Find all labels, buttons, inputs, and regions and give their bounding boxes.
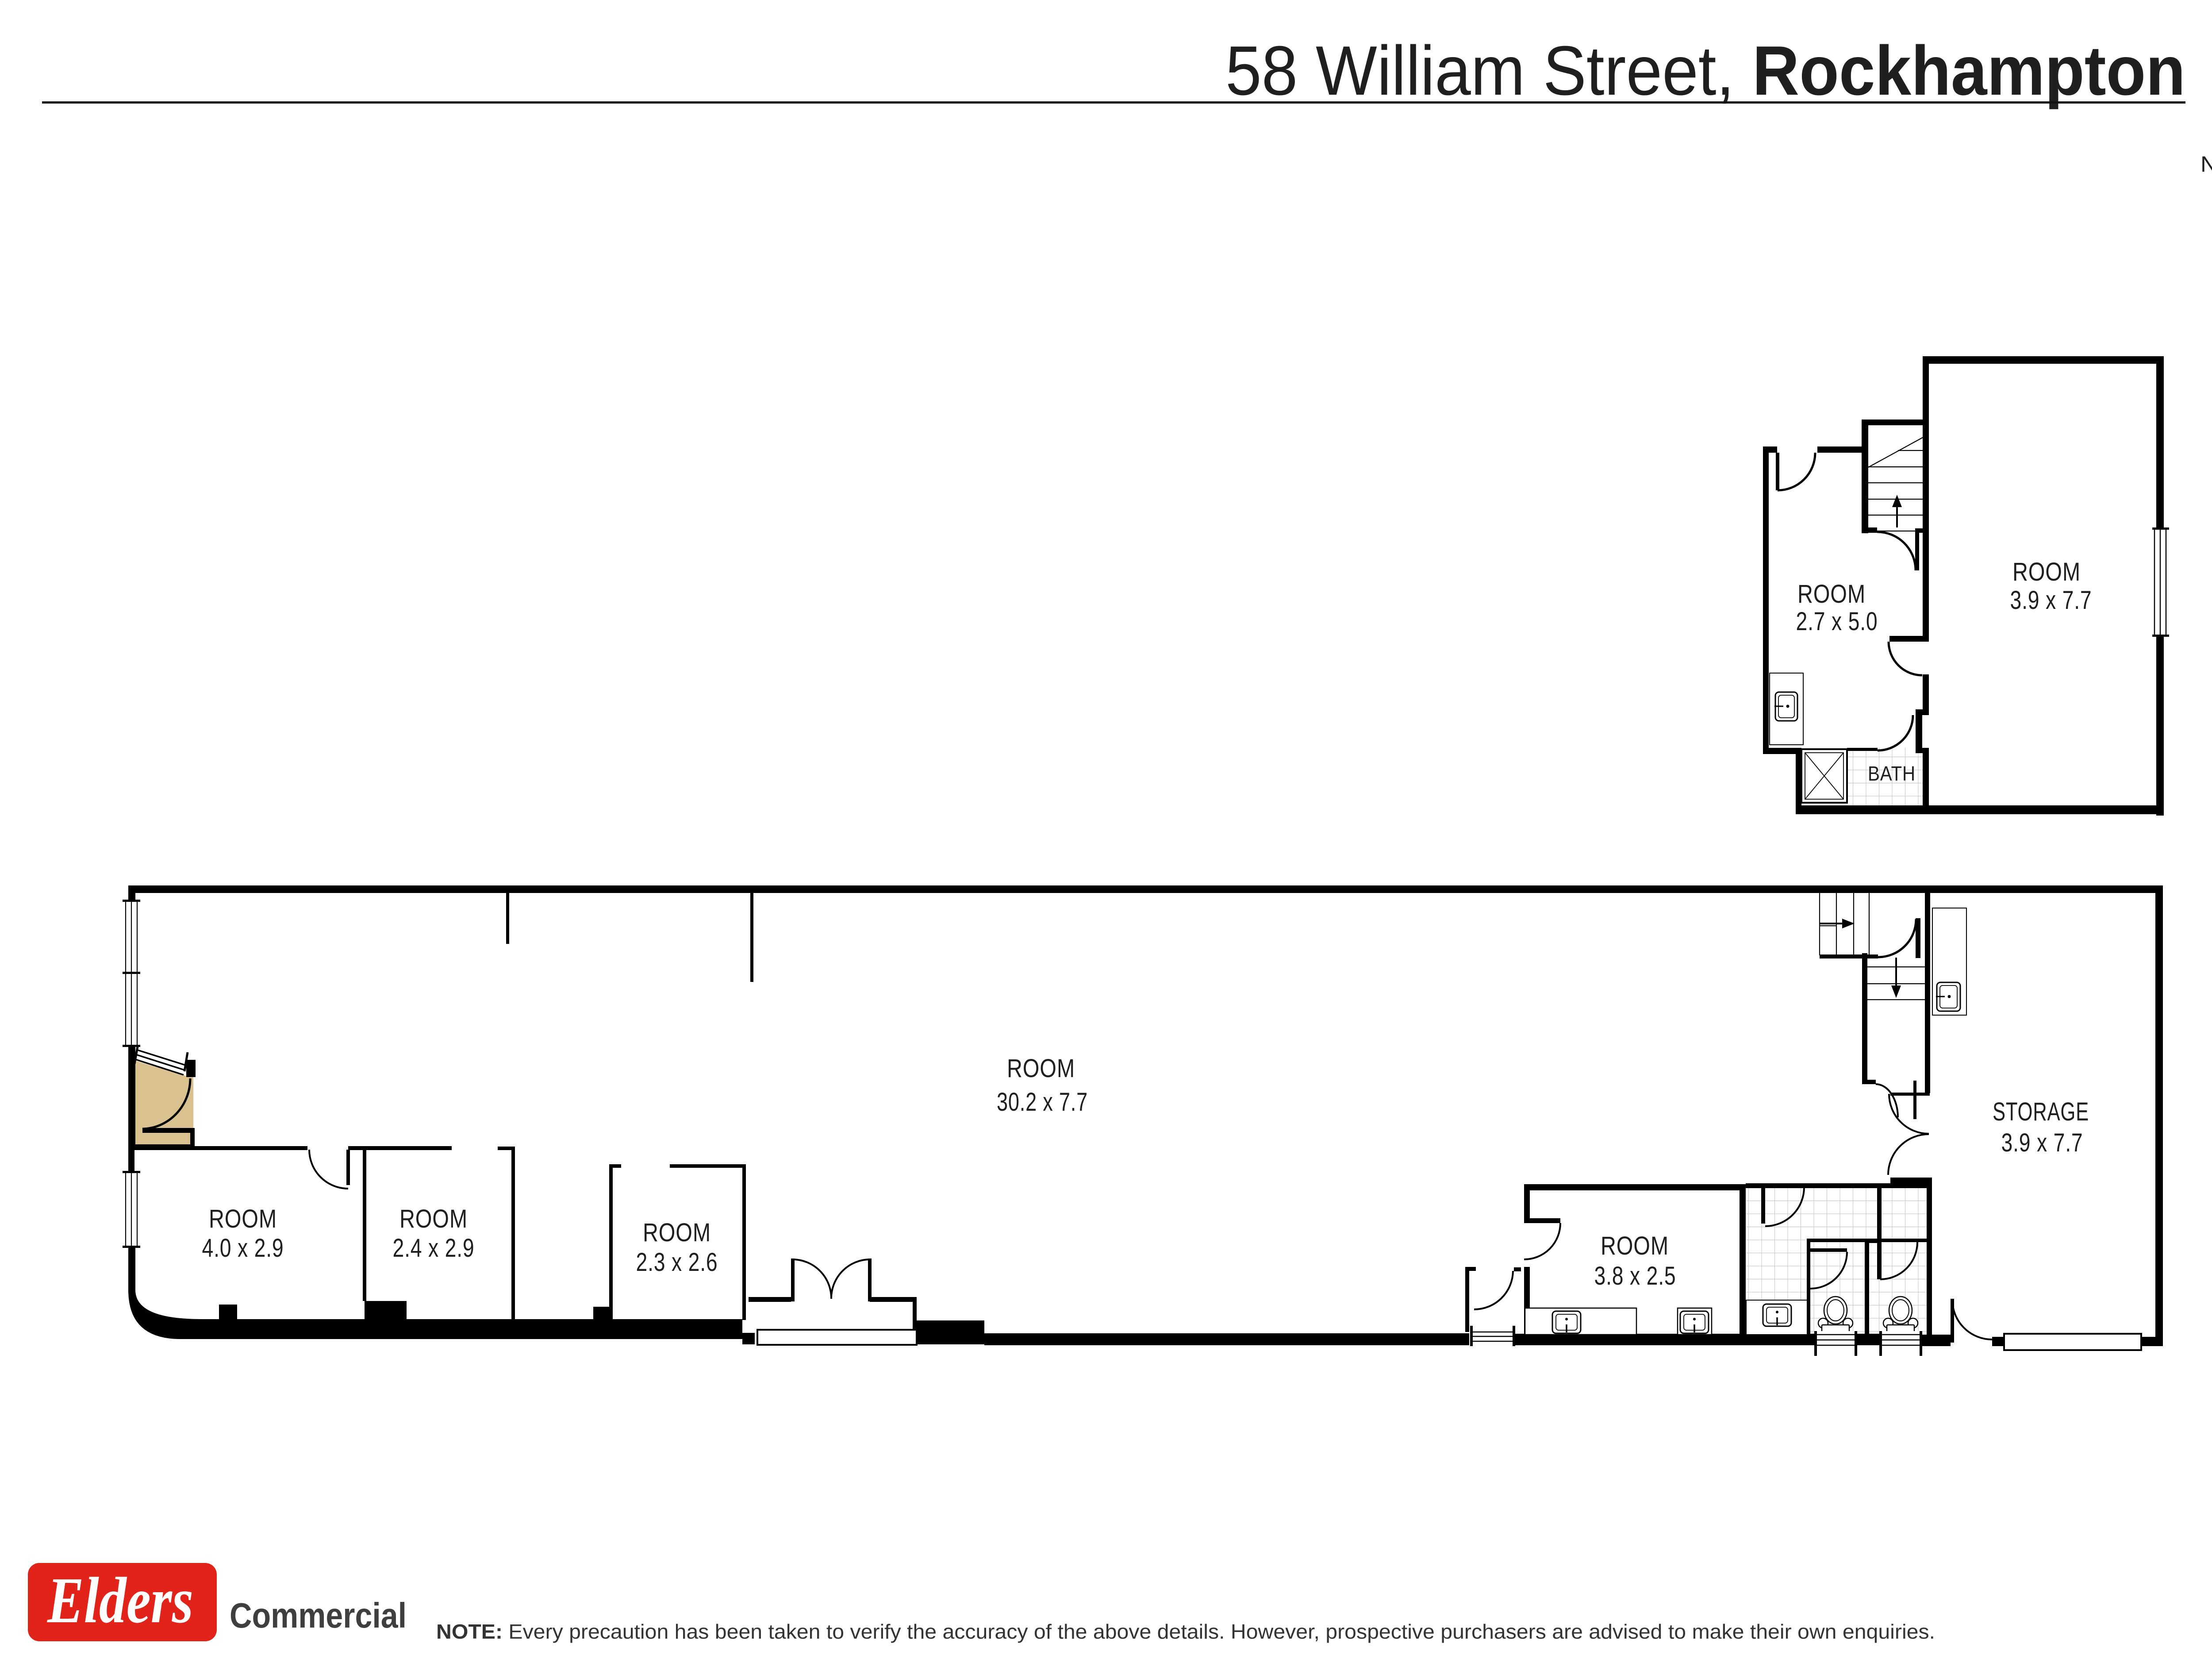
svg-text:3.9 x 7.7: 3.9 x 7.7 (2010, 586, 2092, 615)
svg-text:ROOM: ROOM (399, 1205, 468, 1233)
svg-text:ROOM: ROOM (1797, 580, 1866, 608)
svg-text:NORTH: NORTH (2200, 152, 2212, 177)
svg-text:58 William Street, Rockhampton: 58 William Street, Rockhampton (1225, 32, 2185, 110)
svg-text:Elders: Elders (46, 1564, 193, 1637)
svg-text:ROOM: ROOM (1601, 1232, 1669, 1260)
svg-text:ROOM: ROOM (2012, 558, 2081, 586)
svg-text:STORAGE: STORAGE (1993, 1097, 2089, 1126)
svg-text:2.3 x 2.6: 2.3 x 2.6 (636, 1248, 718, 1277)
svg-text:3.8 x 2.5: 3.8 x 2.5 (1594, 1262, 1676, 1290)
svg-text:ROOM: ROOM (1007, 1054, 1075, 1083)
svg-text:NOTE: Every precaution has bee: NOTE: Every precaution has been taken to… (436, 1620, 1935, 1643)
svg-text:4.0 x 2.9: 4.0 x 2.9 (202, 1234, 284, 1262)
svg-text:30.2 x 7.7: 30.2 x 7.7 (997, 1088, 1088, 1116)
svg-text:3.9 x 7.7: 3.9 x 7.7 (2001, 1128, 2083, 1157)
svg-text:Commercial: Commercial (230, 1596, 407, 1635)
svg-text:2.7 x 5.0: 2.7 x 5.0 (1796, 607, 1878, 636)
svg-text:BATH: BATH (1868, 762, 1916, 785)
svg-text:ROOM: ROOM (209, 1205, 277, 1233)
svg-text:2.4 x 2.9: 2.4 x 2.9 (393, 1234, 475, 1262)
svg-text:ROOM: ROOM (643, 1218, 711, 1247)
